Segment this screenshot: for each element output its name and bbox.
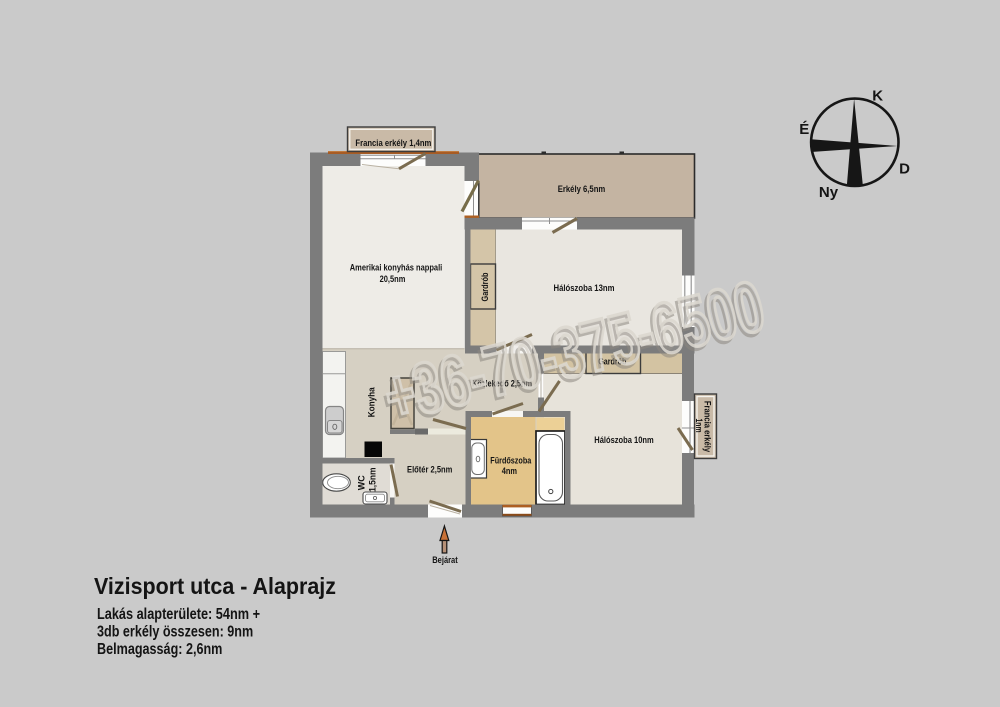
- svg-text:Konyha: Konyha: [367, 387, 378, 418]
- svg-text:Belmagasság: 2,6nm: Belmagasság: 2,6nm: [97, 641, 222, 658]
- svg-text:Előtér 2,5nm: Előtér 2,5nm: [407, 465, 452, 476]
- svg-text:Gardrób: Gardrób: [480, 272, 491, 301]
- svg-text:WC: WC: [357, 475, 368, 490]
- svg-text:4nm: 4nm: [502, 466, 517, 477]
- svg-text:Ny: Ny: [819, 184, 839, 201]
- svg-text:1nm: 1nm: [693, 419, 704, 433]
- svg-text:K: K: [872, 87, 883, 104]
- svg-text:Vizisport utca - Alaprajz: Vizisport utca - Alaprajz: [94, 573, 336, 599]
- svg-text:Francia erkély 1,4nm: Francia erkély 1,4nm: [355, 138, 431, 149]
- svg-text:Erkély 6,5nm: Erkély 6,5nm: [558, 184, 606, 195]
- svg-text:Hálószoba 10nm: Hálószoba 10nm: [594, 435, 653, 446]
- svg-text:É: É: [799, 121, 809, 138]
- svg-text:Amerikai konyhás nappali: Amerikai konyhás nappali: [350, 262, 443, 273]
- svg-text:3db erkély összesen: 9nm: 3db erkély összesen: 9nm: [97, 624, 253, 641]
- svg-text:1,5nm: 1,5nm: [368, 468, 379, 492]
- svg-text:Fürdőszoba: Fürdőszoba: [490, 456, 532, 467]
- svg-text:20,5nm: 20,5nm: [380, 274, 406, 285]
- svg-text:D: D: [899, 160, 910, 177]
- svg-text:Bejárat: Bejárat: [432, 555, 458, 566]
- svg-text:Hálószoba 13nm: Hálószoba 13nm: [554, 283, 615, 294]
- svg-text:Lakás alapterülete: 54nm +: Lakás alapterülete: 54nm +: [97, 606, 260, 623]
